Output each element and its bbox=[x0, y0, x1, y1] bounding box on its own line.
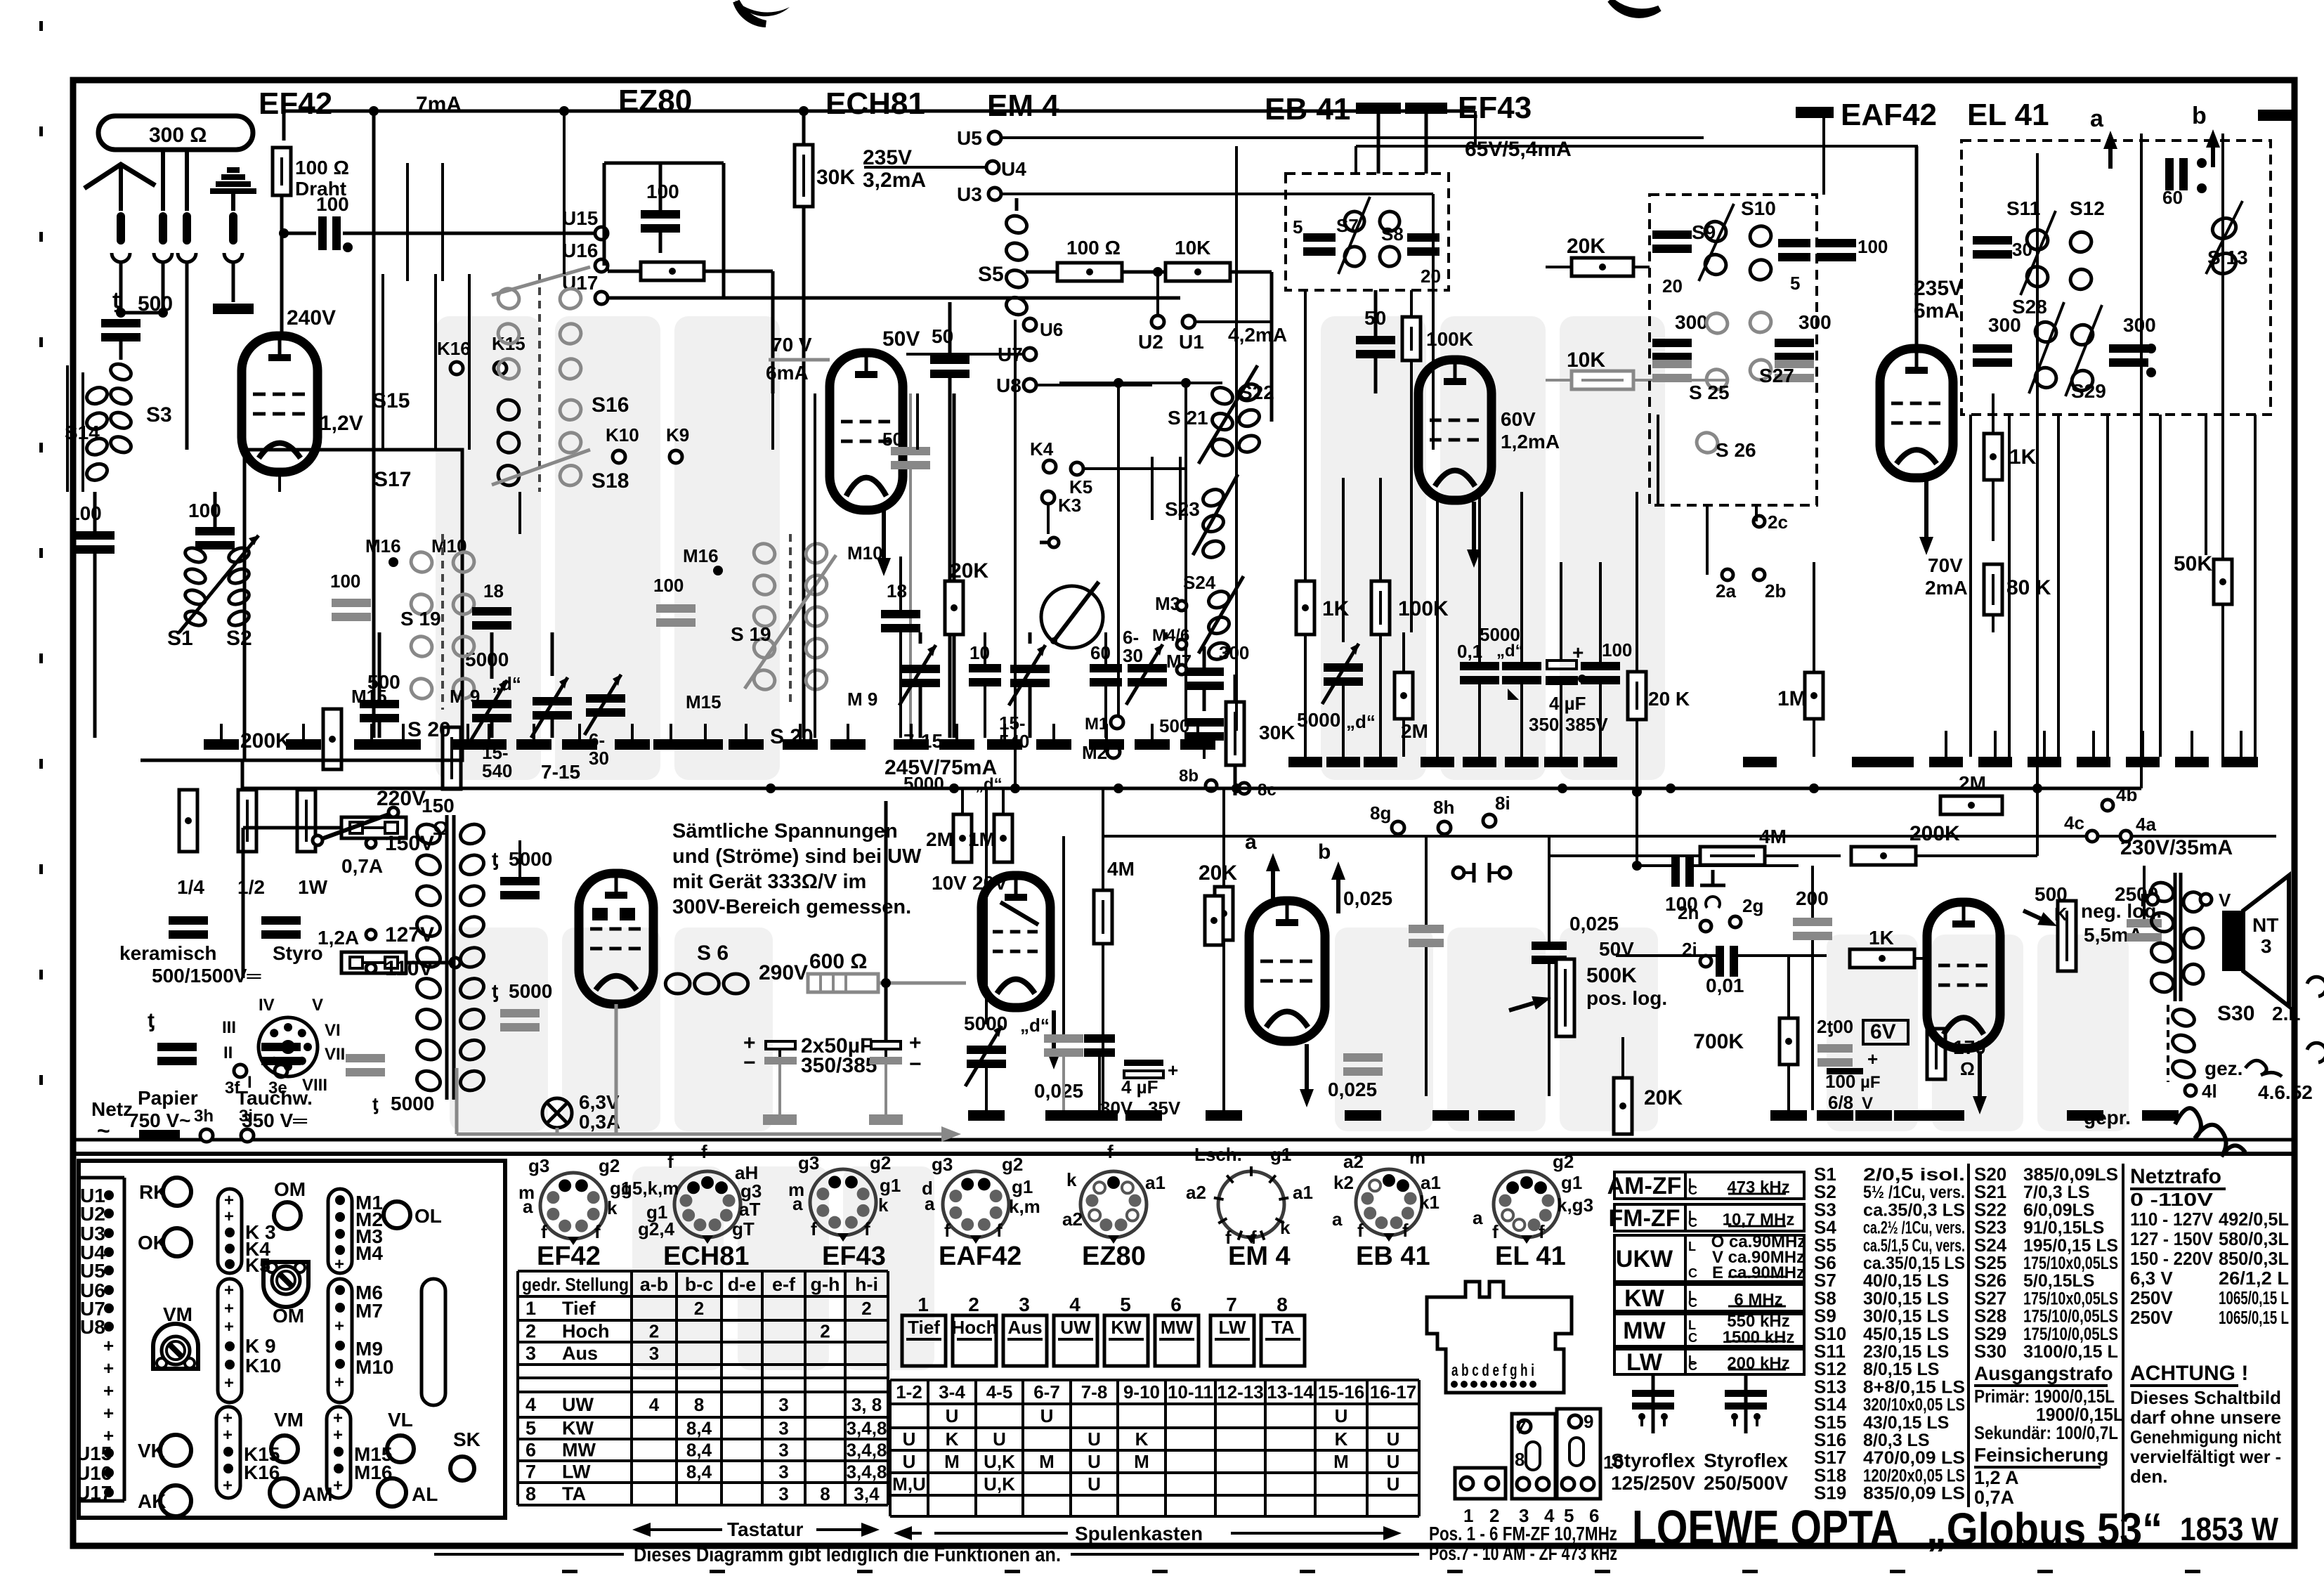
svg-text:50K: 50K bbox=[2174, 552, 2212, 575]
svg-text:OM: OM bbox=[274, 1178, 306, 1200]
svg-text:4a: 4a bbox=[2136, 814, 2156, 835]
svg-text:1,2 A: 1,2 A bbox=[1974, 1467, 2019, 1488]
svg-text:6-7: 6-7 bbox=[1033, 1381, 1060, 1402]
svg-text:4b: 4b bbox=[2116, 784, 2137, 805]
svg-text:750 V~: 750 V~ bbox=[128, 1109, 191, 1131]
svg-text:M 9: M 9 bbox=[450, 686, 480, 707]
svg-text:8g: 8g bbox=[1370, 802, 1391, 824]
svg-text:f: f bbox=[1251, 1227, 1257, 1248]
svg-text:6,3V: 6,3V bbox=[579, 1091, 620, 1113]
svg-text:45/0,15 LS: 45/0,15 LS bbox=[1863, 1325, 1949, 1344]
svg-text:60V: 60V bbox=[1501, 408, 1536, 430]
svg-text:a b c d e f g h i: a b c d e f g h i bbox=[1451, 1361, 1534, 1380]
svg-text:ƫ: ƫ bbox=[492, 848, 498, 870]
svg-text:Styroflex: Styroflex bbox=[1611, 1450, 1695, 1471]
svg-text:K16: K16 bbox=[437, 338, 471, 359]
svg-text:U: U bbox=[1387, 1428, 1400, 1450]
svg-text:50: 50 bbox=[882, 429, 903, 450]
svg-text:6: 6 bbox=[525, 1440, 536, 1461]
svg-text:S 20: S 20 bbox=[407, 718, 451, 741]
svg-text:3100/0,15 L: 3100/0,15 L bbox=[2023, 1342, 2118, 1362]
svg-text:d-e: d-e bbox=[728, 1274, 757, 1295]
svg-text:f: f bbox=[1492, 1221, 1499, 1242]
svg-text:8: 8 bbox=[820, 1483, 830, 1504]
svg-text:+: + bbox=[223, 1476, 233, 1495]
svg-text:20K: 20K bbox=[1567, 235, 1605, 258]
svg-text:3: 3 bbox=[778, 1483, 788, 1504]
svg-text:2: 2 bbox=[694, 1298, 704, 1319]
svg-text:2ƫ00: 2ƫ00 bbox=[1817, 1016, 1853, 1037]
svg-text:U5: U5 bbox=[80, 1260, 105, 1282]
svg-text:Tief: Tief bbox=[562, 1298, 596, 1319]
svg-text:Styro: Styro bbox=[273, 942, 323, 964]
svg-text:Pos. 1 - 6 FM-ZF 10,7MHz: Pos. 1 - 6 FM-ZF 10,7MHz bbox=[1429, 1523, 1617, 1544]
svg-text:U: U bbox=[1040, 1405, 1054, 1426]
svg-text:f: f bbox=[996, 1220, 1003, 1241]
svg-text:f: f bbox=[811, 1218, 817, 1239]
svg-text:10-11: 10-11 bbox=[1168, 1381, 1213, 1402]
svg-text:100: 100 bbox=[1602, 639, 1632, 660]
svg-text:125/250V: 125/250V bbox=[1611, 1472, 1695, 1494]
svg-text:g2: g2 bbox=[870, 1152, 891, 1173]
svg-text:K9: K9 bbox=[666, 424, 689, 445]
svg-text:Ausgangstrafo: Ausgangstrafo bbox=[1974, 1362, 2113, 1384]
svg-text:5: 5 bbox=[1790, 273, 1800, 294]
svg-text:+: + bbox=[224, 1317, 234, 1336]
svg-text:Dieses Schaltbild: Dieses Schaltbild bbox=[2130, 1387, 2281, 1408]
svg-text:S 19: S 19 bbox=[400, 608, 441, 630]
svg-text:M: M bbox=[944, 1451, 960, 1472]
svg-text:a: a bbox=[2090, 105, 2104, 132]
svg-text:1500 kHz: 1500 kHz bbox=[1723, 1328, 1795, 1347]
svg-text:den.: den. bbox=[2130, 1466, 2167, 1487]
svg-text:+: + bbox=[224, 1281, 234, 1300]
svg-text:8+8/0,15 LS: 8+8/0,15 LS bbox=[1863, 1377, 1965, 1397]
svg-text:U: U bbox=[1387, 1473, 1400, 1495]
svg-text:3e: 3e bbox=[268, 1079, 287, 1098]
svg-text:385V: 385V bbox=[1565, 714, 1608, 735]
svg-text:100: 100 bbox=[69, 502, 102, 524]
svg-text:100 Ω: 100 Ω bbox=[1066, 237, 1121, 259]
svg-text:K 9: K 9 bbox=[245, 1335, 276, 1357]
svg-text:300: 300 bbox=[1988, 314, 2021, 336]
svg-text:FM-ZF: FM-ZF bbox=[1609, 1205, 1680, 1232]
svg-text:1,2A: 1,2A bbox=[318, 927, 359, 949]
svg-text:3: 3 bbox=[1019, 1294, 1030, 1315]
svg-text:EZ80: EZ80 bbox=[618, 84, 692, 118]
svg-text:S16: S16 bbox=[592, 393, 629, 417]
svg-text:S 19: S 19 bbox=[731, 623, 771, 645]
svg-text:91/0,15LS: 91/0,15LS bbox=[2023, 1218, 2104, 1238]
svg-text:8,4: 8,4 bbox=[686, 1462, 712, 1483]
svg-text:EAF42: EAF42 bbox=[1841, 98, 1937, 132]
svg-text:2: 2 bbox=[820, 1321, 830, 1342]
svg-text:Lsch.: Lsch. bbox=[1194, 1144, 1242, 1165]
svg-text:K: K bbox=[946, 1428, 959, 1450]
svg-text:+: + bbox=[224, 1299, 234, 1318]
svg-text:6mA: 6mA bbox=[766, 362, 809, 384]
svg-text:30K: 30K bbox=[1259, 722, 1295, 743]
svg-text:3: 3 bbox=[649, 1343, 659, 1364]
svg-text:k1: k1 bbox=[1419, 1192, 1440, 1213]
svg-text:S 26: S 26 bbox=[1716, 439, 1756, 461]
svg-text:S30: S30 bbox=[2217, 1002, 2254, 1025]
svg-text:20: 20 bbox=[1662, 275, 1683, 297]
svg-text:5000: 5000 bbox=[1297, 709, 1340, 731]
svg-text:8: 8 bbox=[694, 1394, 704, 1415]
svg-text:8/0,15 LS: 8/0,15 LS bbox=[1863, 1360, 1939, 1379]
svg-text:127 - 150V: 127 - 150V bbox=[2130, 1228, 2214, 1249]
svg-text:keramisch: keramisch bbox=[119, 942, 217, 964]
svg-text:f: f bbox=[1539, 1221, 1545, 1242]
svg-text:+: + bbox=[103, 1402, 114, 1424]
svg-text:Sekundär: 100/0,7L: Sekundär: 100/0,7L bbox=[1974, 1422, 2118, 1443]
svg-text:3i: 3i bbox=[239, 1107, 253, 1126]
svg-text:5000: 5000 bbox=[509, 848, 552, 870]
svg-text:C: C bbox=[1688, 1331, 1697, 1345]
svg-text:U: U bbox=[946, 1405, 959, 1426]
svg-text:NT: NT bbox=[2252, 914, 2278, 936]
svg-text:UW: UW bbox=[1060, 1317, 1091, 1338]
svg-text:3: 3 bbox=[778, 1462, 788, 1483]
svg-text:g2: g2 bbox=[1002, 1154, 1023, 1175]
svg-text:8,4: 8,4 bbox=[686, 1440, 712, 1461]
svg-text:C: C bbox=[1688, 1216, 1697, 1230]
svg-text:2/0,5 isol.: 2/0,5 isol. bbox=[1863, 1165, 1965, 1185]
svg-text:MW: MW bbox=[1161, 1317, 1194, 1338]
svg-text:g3: g3 bbox=[932, 1154, 953, 1175]
svg-text:S15: S15 bbox=[372, 389, 410, 412]
svg-text:K5: K5 bbox=[245, 1254, 270, 1276]
svg-text:15-16: 15-16 bbox=[1318, 1381, 1365, 1402]
svg-text:VI: VI bbox=[325, 1021, 341, 1040]
svg-text:VL: VL bbox=[388, 1409, 413, 1431]
svg-text:EM 4: EM 4 bbox=[987, 89, 1059, 123]
svg-text:k: k bbox=[1280, 1217, 1291, 1238]
svg-text:S 6: S 6 bbox=[697, 942, 729, 965]
svg-text:5000: 5000 bbox=[509, 980, 552, 1002]
svg-text:1853 W: 1853 W bbox=[2180, 1511, 2279, 1547]
svg-text:250/500V: 250/500V bbox=[1704, 1472, 1788, 1494]
svg-text:50V: 50V bbox=[1599, 938, 1634, 960]
svg-text:g5,k,m: g5,k,m bbox=[621, 1178, 679, 1199]
svg-text:500: 500 bbox=[2035, 883, 2068, 905]
svg-text:darf ohne unsere: darf ohne unsere bbox=[2130, 1407, 2281, 1428]
svg-text:+: + bbox=[1572, 642, 1584, 663]
svg-text:4: 4 bbox=[525, 1394, 536, 1415]
svg-text:+: + bbox=[103, 1358, 114, 1379]
svg-text:3h: 3h bbox=[194, 1107, 214, 1126]
svg-text:U: U bbox=[993, 1428, 1006, 1450]
svg-text:5000: 5000 bbox=[391, 1093, 434, 1114]
svg-text:0 -110V: 0 -110V bbox=[2130, 1189, 2214, 1210]
svg-text:OM: OM bbox=[273, 1305, 304, 1327]
svg-text:U: U bbox=[1335, 1405, 1348, 1426]
svg-text:8: 8 bbox=[1515, 1449, 1525, 1470]
svg-text:C: C bbox=[1688, 1296, 1697, 1310]
svg-text:500K: 500K bbox=[1586, 964, 1637, 987]
svg-text:350/385: 350/385 bbox=[801, 1054, 877, 1077]
svg-text:150 - 220V: 150 - 220V bbox=[2130, 1248, 2214, 1269]
svg-text:EL 41: EL 41 bbox=[1967, 98, 2049, 132]
svg-text:9: 9 bbox=[1584, 1411, 1593, 1432]
svg-text:U8: U8 bbox=[996, 375, 1021, 396]
svg-text:UW: UW bbox=[562, 1394, 594, 1415]
svg-text:2a: 2a bbox=[1716, 580, 1736, 601]
svg-text:a-b: a-b bbox=[640, 1274, 669, 1295]
svg-text:S5: S5 bbox=[978, 263, 1004, 286]
svg-text:220V: 220V bbox=[377, 787, 426, 810]
svg-text:M: M bbox=[1039, 1451, 1055, 1472]
svg-text:700K: 700K bbox=[1693, 1030, 1744, 1053]
svg-text:ca.35/0,3 LS: ca.35/0,3 LS bbox=[1863, 1200, 1965, 1220]
svg-text:1M: 1M bbox=[968, 828, 995, 850]
svg-text:+: + bbox=[224, 1207, 234, 1226]
svg-text:a: a bbox=[792, 1193, 803, 1214]
svg-text:10K: 10K bbox=[1567, 349, 1605, 372]
svg-text:492/0,5L: 492/0,5L bbox=[2219, 1209, 2289, 1230]
svg-text:8/0,3 LS: 8/0,3 LS bbox=[1863, 1431, 1930, 1450]
svg-text:M16: M16 bbox=[683, 545, 719, 566]
svg-text:U,K: U,K bbox=[984, 1473, 1015, 1495]
svg-text:195/0,15 LS: 195/0,15 LS bbox=[2023, 1236, 2118, 1256]
svg-text:Tastatur: Tastatur bbox=[727, 1518, 803, 1540]
svg-text:„d“: „d“ bbox=[1346, 711, 1376, 732]
svg-text:600 Ω: 600 Ω bbox=[809, 950, 867, 973]
svg-text:8: 8 bbox=[1277, 1294, 1288, 1315]
svg-text:C: C bbox=[1688, 1266, 1697, 1280]
svg-text:gepr.: gepr. bbox=[2084, 1107, 2131, 1128]
svg-text:a: a bbox=[1473, 1207, 1483, 1228]
svg-text:AL: AL bbox=[412, 1483, 438, 1505]
svg-text:175/10/0,05LS: 175/10/0,05LS bbox=[2023, 1325, 2118, 1344]
svg-text:S17: S17 bbox=[374, 468, 411, 491]
svg-text:8: 8 bbox=[525, 1483, 536, 1504]
svg-text:2: 2 bbox=[968, 1294, 979, 1315]
svg-text:U2: U2 bbox=[80, 1203, 105, 1225]
svg-text:0,025: 0,025 bbox=[1569, 913, 1619, 935]
svg-text:350: 350 bbox=[1529, 714, 1559, 735]
svg-text:110 - 127V: 110 - 127V bbox=[2130, 1209, 2214, 1230]
svg-text:3,4,8: 3,4,8 bbox=[847, 1440, 887, 1461]
svg-text:Papier: Papier bbox=[138, 1087, 198, 1109]
svg-text:385/0,09LS: 385/0,09LS bbox=[2023, 1165, 2118, 1185]
svg-text:250V: 250V bbox=[2130, 1287, 2173, 1308]
svg-text:300V-Bereich gemessen.: 300V-Bereich gemessen. bbox=[672, 896, 911, 918]
svg-text:KW: KW bbox=[1624, 1285, 1665, 1312]
svg-text:U15: U15 bbox=[562, 207, 598, 229]
svg-text:Pos.7 - 10 AM - ZF 473 kHz: Pos.7 - 10 AM - ZF 473 kHz bbox=[1429, 1542, 1617, 1564]
svg-text:S18: S18 bbox=[592, 469, 629, 493]
svg-text:30/0,15 LS: 30/0,15 LS bbox=[1863, 1289, 1949, 1308]
svg-text:V: V bbox=[2219, 890, 2231, 911]
svg-text:ACHTUNG !: ACHTUNG ! bbox=[2130, 1362, 2248, 1385]
svg-text:gT: gT bbox=[732, 1218, 755, 1239]
svg-text:f: f bbox=[594, 1221, 601, 1242]
svg-text:U,K: U,K bbox=[984, 1451, 1015, 1472]
svg-text:20: 20 bbox=[1421, 266, 1441, 287]
svg-text:k: k bbox=[1066, 1169, 1077, 1190]
svg-text:TA: TA bbox=[562, 1483, 586, 1504]
svg-text:Ω: Ω bbox=[1960, 1058, 1975, 1079]
svg-text:AM-ZF: AM-ZF bbox=[1607, 1173, 1682, 1199]
svg-text:S24: S24 bbox=[1183, 572, 1216, 593]
svg-text:6: 6 bbox=[1170, 1294, 1182, 1315]
svg-text:0,3A: 0,3A bbox=[579, 1111, 620, 1133]
svg-text:20K: 20K bbox=[1644, 1086, 1683, 1109]
svg-text:Sämtliche Spannungen: Sämtliche Spannungen bbox=[672, 820, 898, 842]
svg-text:8b: 8b bbox=[1179, 767, 1199, 786]
svg-text:+: + bbox=[909, 1031, 922, 1055]
svg-text:580/0,3L: 580/0,3L bbox=[2219, 1228, 2289, 1249]
svg-text:+: + bbox=[333, 1426, 343, 1445]
svg-text:EF42: EF42 bbox=[537, 1242, 601, 1271]
svg-text:300: 300 bbox=[1675, 311, 1708, 333]
svg-text:+: + bbox=[333, 1476, 343, 1495]
svg-text:100 Ω: 100 Ω bbox=[295, 157, 349, 178]
svg-text:U3: U3 bbox=[957, 183, 982, 205]
svg-text:a: a bbox=[1245, 831, 1257, 854]
svg-text:EZ80: EZ80 bbox=[1082, 1242, 1146, 1271]
svg-text:4.6.52: 4.6.52 bbox=[2258, 1081, 2313, 1103]
svg-text:100K: 100K bbox=[1398, 597, 1449, 620]
svg-text:10: 10 bbox=[970, 642, 990, 663]
svg-text:AK: AK bbox=[138, 1490, 166, 1512]
svg-text:10K: 10K bbox=[1175, 237, 1210, 259]
svg-text:+: + bbox=[103, 1380, 114, 1401]
svg-text:65V/5,4mA: 65V/5,4mA bbox=[1465, 138, 1572, 161]
svg-text:Dieses Diagramm gibt ledigl: Dieses Diagramm gibt lediglich die Funkt… bbox=[634, 1544, 1061, 1566]
svg-text:f: f bbox=[1402, 1220, 1409, 1241]
svg-text:80 K: 80 K bbox=[2006, 576, 2051, 599]
svg-text:M16: M16 bbox=[354, 1462, 392, 1483]
svg-text:VII: VII bbox=[325, 1045, 345, 1064]
svg-text:a: a bbox=[925, 1193, 935, 1214]
svg-text:16-17: 16-17 bbox=[1370, 1381, 1417, 1402]
svg-text:ECH81: ECH81 bbox=[825, 86, 925, 121]
svg-text:VM: VM bbox=[274, 1409, 303, 1431]
svg-text:0,7A: 0,7A bbox=[341, 855, 383, 877]
svg-text:26/1,2 L: 26/1,2 L bbox=[2219, 1268, 2289, 1289]
svg-text:K: K bbox=[1135, 1428, 1149, 1450]
svg-text:4l: 4l bbox=[2202, 1081, 2217, 1102]
svg-text:C: C bbox=[1688, 1359, 1697, 1373]
svg-text:120/20x0,05 LS: 120/20x0,05 LS bbox=[1863, 1466, 1965, 1485]
svg-text:VK: VK bbox=[138, 1440, 165, 1462]
svg-text:18: 18 bbox=[887, 580, 907, 601]
svg-text:6/0,09LS: 6/0,09LS bbox=[2023, 1200, 2094, 1220]
svg-text:8h: 8h bbox=[1433, 797, 1454, 818]
svg-text:290V: 290V bbox=[759, 961, 808, 984]
svg-text:g-h: g-h bbox=[811, 1274, 840, 1295]
svg-text:6mA: 6mA bbox=[1914, 299, 1959, 323]
svg-text:150: 150 bbox=[422, 795, 455, 816]
svg-text:10V: 10V bbox=[932, 872, 967, 894]
svg-text:40/0,15 LS: 40/0,15 LS bbox=[1863, 1271, 1949, 1291]
svg-text:850/0,3L: 850/0,3L bbox=[2219, 1248, 2289, 1269]
svg-text:b-c: b-c bbox=[685, 1274, 714, 1295]
svg-text:U2: U2 bbox=[1138, 331, 1163, 353]
svg-text:gez.: gez. bbox=[2205, 1057, 2243, 1079]
svg-text:+: + bbox=[224, 1374, 234, 1393]
svg-text:245V/75mA: 245V/75mA bbox=[884, 756, 997, 779]
svg-text:S3: S3 bbox=[146, 403, 172, 427]
svg-text:S11: S11 bbox=[2006, 197, 2040, 219]
svg-text:2: 2 bbox=[649, 1321, 659, 1342]
svg-text:f: f bbox=[944, 1220, 951, 1241]
svg-text:f: f bbox=[667, 1151, 674, 1172]
svg-text:und (Ströme) sind bei UW: und (Ströme) sind bei UW bbox=[672, 845, 922, 868]
svg-text:9-10: 9-10 bbox=[1123, 1381, 1160, 1402]
svg-text:M15: M15 bbox=[686, 691, 722, 712]
svg-text:500: 500 bbox=[138, 292, 173, 315]
svg-text:LOEWE OPTA: LOEWE OPTA bbox=[1632, 1500, 1899, 1555]
svg-text:4 µF: 4 µF bbox=[1121, 1076, 1158, 1098]
svg-text:f: f bbox=[701, 1141, 707, 1162]
svg-text:20K: 20K bbox=[1199, 861, 1237, 885]
svg-text:III: III bbox=[222, 1018, 236, 1037]
svg-text:M15: M15 bbox=[351, 686, 387, 707]
svg-text:1,2mA: 1,2mA bbox=[1501, 431, 1560, 453]
svg-text:LW: LW bbox=[1626, 1349, 1663, 1376]
svg-text:U: U bbox=[1088, 1473, 1101, 1495]
svg-text:240V: 240V bbox=[287, 306, 336, 330]
svg-text:1: 1 bbox=[525, 1298, 536, 1319]
svg-text:70 V: 70 V bbox=[771, 334, 812, 356]
svg-text:2: 2 bbox=[525, 1321, 536, 1342]
svg-text:4M: 4M bbox=[1107, 858, 1135, 880]
svg-text:LW: LW bbox=[1219, 1317, 1246, 1338]
svg-text:540: 540 bbox=[482, 760, 512, 781]
svg-text:g1: g1 bbox=[1561, 1172, 1582, 1193]
svg-text:h-i: h-i bbox=[855, 1274, 878, 1295]
svg-text:M: M bbox=[1134, 1451, 1149, 1472]
svg-text:f: f bbox=[1107, 1141, 1114, 1162]
svg-text:„d“: „d“ bbox=[1496, 642, 1524, 660]
svg-text:3,4,8: 3,4,8 bbox=[847, 1462, 887, 1483]
svg-text:EB 41: EB 41 bbox=[1356, 1242, 1430, 1271]
svg-text:S9: S9 bbox=[1692, 221, 1716, 243]
svg-text:7-8: 7-8 bbox=[1081, 1381, 1108, 1402]
svg-text:a1: a1 bbox=[1293, 1182, 1313, 1203]
svg-text:E ca.90MHz: E ca.90MHz bbox=[1712, 1263, 1805, 1282]
svg-text:U: U bbox=[1088, 1428, 1101, 1450]
svg-text:S 21: S 21 bbox=[1168, 407, 1208, 429]
svg-text:k2: k2 bbox=[1333, 1172, 1354, 1193]
svg-text:a1: a1 bbox=[1421, 1172, 1441, 1193]
svg-text:M16: M16 bbox=[365, 535, 401, 557]
svg-text:Feinsicherung: Feinsicherung bbox=[1974, 1444, 2108, 1466]
svg-text:a2: a2 bbox=[1343, 1151, 1364, 1172]
svg-text:g1: g1 bbox=[1012, 1176, 1033, 1197]
svg-text:1W: 1W bbox=[298, 876, 328, 898]
svg-text:M,U: M,U bbox=[892, 1473, 926, 1495]
svg-text:L: L bbox=[1688, 1239, 1696, 1254]
svg-text:250V: 250V bbox=[2130, 1307, 2173, 1328]
svg-text:+: + bbox=[223, 1409, 233, 1428]
svg-text:ƫ: ƫ bbox=[148, 1009, 155, 1032]
svg-text:+: + bbox=[103, 1335, 114, 1356]
svg-text:7: 7 bbox=[1516, 1417, 1526, 1438]
svg-text:5/0,15LS: 5/0,15LS bbox=[2023, 1271, 2094, 1291]
svg-text:200K: 200K bbox=[1910, 822, 1960, 845]
svg-text:13-14: 13-14 bbox=[1267, 1381, 1314, 1402]
svg-text:LW: LW bbox=[562, 1462, 591, 1483]
svg-text:470/0,09 LS: 470/0,09 LS bbox=[1863, 1448, 1965, 1468]
svg-text:VIII: VIII bbox=[302, 1076, 327, 1095]
svg-text:ca.5/1,5 Cu, vers.: ca.5/1,5 Cu, vers. bbox=[1863, 1236, 1965, 1256]
svg-text:1K: 1K bbox=[1869, 927, 1894, 949]
